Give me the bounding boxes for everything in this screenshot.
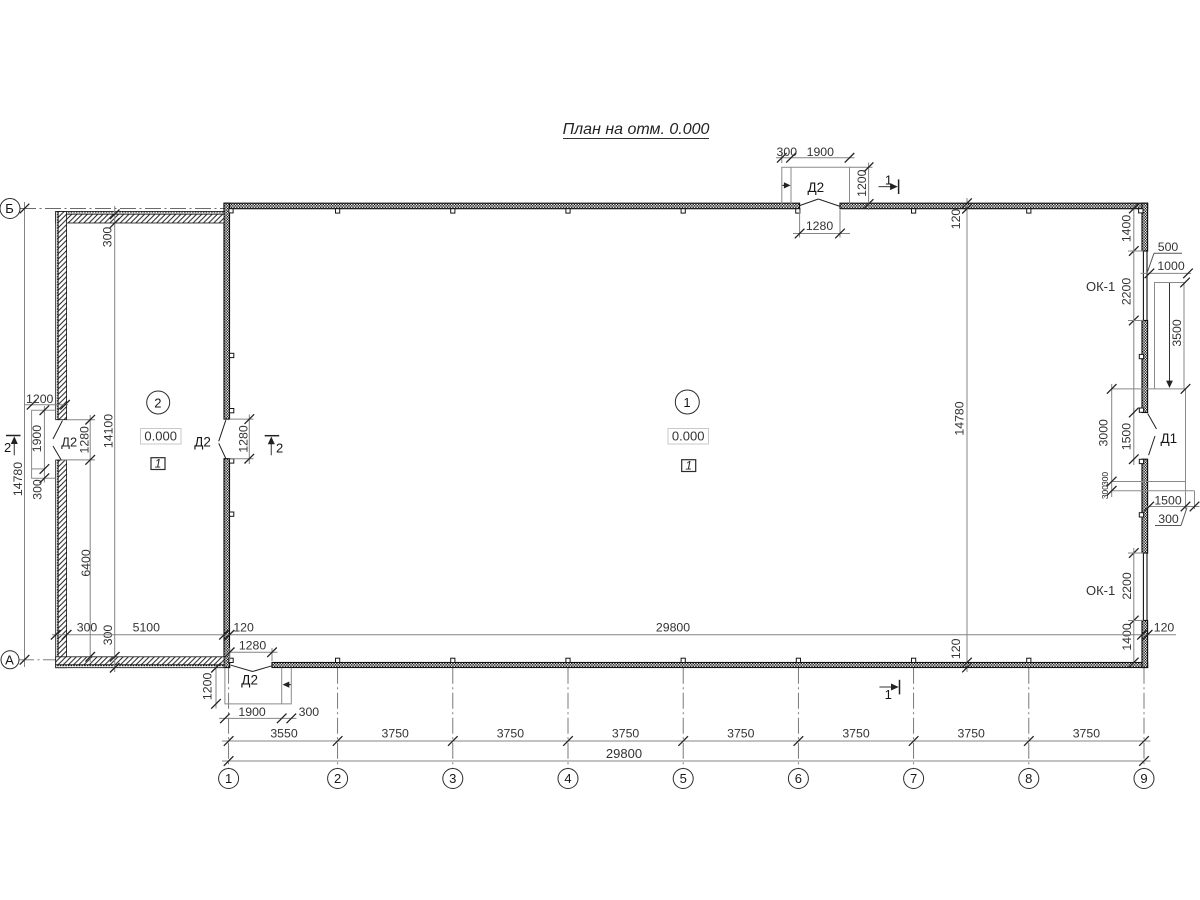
svg-text:2200: 2200 <box>1120 278 1134 306</box>
svg-text:1280: 1280 <box>78 426 92 454</box>
svg-text:1400: 1400 <box>1120 215 1134 243</box>
svg-text:1280: 1280 <box>806 219 834 233</box>
svg-text:300: 300 <box>30 479 44 500</box>
svg-text:9: 9 <box>1140 771 1147 786</box>
svg-text:120: 120 <box>1154 621 1175 635</box>
svg-text:Д2: Д2 <box>241 673 258 688</box>
svg-text:1280: 1280 <box>236 425 250 453</box>
svg-text:120: 120 <box>949 209 963 230</box>
svg-text:3750: 3750 <box>727 727 755 741</box>
svg-text:0.000: 0.000 <box>672 429 705 444</box>
svg-text:Д2: Д2 <box>808 180 825 195</box>
svg-text:3750: 3750 <box>842 727 870 741</box>
svg-text:29800: 29800 <box>656 621 690 635</box>
svg-text:2: 2 <box>276 441 283 456</box>
svg-text:0.000: 0.000 <box>144 429 177 444</box>
svg-text:1000: 1000 <box>1157 259 1185 273</box>
svg-text:1: 1 <box>885 173 892 188</box>
svg-text:6: 6 <box>795 771 802 786</box>
svg-text:2200: 2200 <box>1120 572 1134 600</box>
svg-text:1: 1 <box>685 459 692 473</box>
svg-text:2: 2 <box>334 771 341 786</box>
svg-text:Б: Б <box>5 201 14 216</box>
svg-text:5: 5 <box>680 771 687 786</box>
svg-text:ОК-1: ОК-1 <box>1086 583 1115 598</box>
svg-text:29800: 29800 <box>606 746 642 761</box>
svg-text:14780: 14780 <box>952 401 966 435</box>
svg-text:1: 1 <box>225 771 232 786</box>
svg-text:1280: 1280 <box>239 639 267 653</box>
svg-text:3750: 3750 <box>612 727 640 741</box>
svg-text:14780: 14780 <box>11 462 25 496</box>
svg-text:3500: 3500 <box>1170 319 1184 347</box>
svg-text:3550: 3550 <box>270 727 298 741</box>
svg-text:1200: 1200 <box>855 169 869 197</box>
svg-text:Д2: Д2 <box>61 434 77 449</box>
svg-text:300: 300 <box>1158 512 1179 526</box>
svg-text:1: 1 <box>155 457 162 471</box>
svg-text:300: 300 <box>100 227 114 248</box>
svg-text:300: 300 <box>1100 472 1110 486</box>
svg-text:1: 1 <box>885 687 892 702</box>
svg-text:6400: 6400 <box>79 549 93 577</box>
svg-text:1400: 1400 <box>1120 623 1134 651</box>
svg-text:500: 500 <box>1158 240 1179 254</box>
svg-text:120: 120 <box>949 638 963 659</box>
svg-text:1900: 1900 <box>807 145 835 159</box>
svg-text:3750: 3750 <box>497 727 525 741</box>
svg-text:1200: 1200 <box>200 673 214 701</box>
svg-text:4: 4 <box>564 771 571 786</box>
svg-text:120: 120 <box>233 621 254 635</box>
svg-text:1900: 1900 <box>238 705 266 719</box>
svg-text:8: 8 <box>1025 771 1032 786</box>
svg-text:3750: 3750 <box>958 727 986 741</box>
svg-text:ОК-1: ОК-1 <box>1086 279 1115 294</box>
svg-text:1900: 1900 <box>30 425 44 453</box>
svg-text:5100: 5100 <box>133 621 161 635</box>
svg-text:300: 300 <box>777 145 798 159</box>
svg-text:1500: 1500 <box>1154 493 1182 507</box>
svg-text:3750: 3750 <box>382 727 410 741</box>
svg-text:Д1: Д1 <box>1161 431 1178 446</box>
svg-text:Д2: Д2 <box>194 434 211 449</box>
svg-text:300: 300 <box>299 705 320 719</box>
svg-text:14100: 14100 <box>102 414 116 448</box>
svg-text:1500: 1500 <box>1120 423 1134 451</box>
svg-text:3750: 3750 <box>1073 727 1101 741</box>
svg-text:300: 300 <box>1100 485 1110 499</box>
svg-text:1: 1 <box>683 395 690 410</box>
svg-text:А: А <box>5 653 14 668</box>
svg-text:3: 3 <box>449 771 456 786</box>
svg-text:2: 2 <box>4 440 11 455</box>
svg-text:1200: 1200 <box>26 392 54 406</box>
svg-text:7: 7 <box>910 771 917 786</box>
svg-text:300: 300 <box>77 621 98 635</box>
svg-text:3000: 3000 <box>1097 419 1111 447</box>
svg-text:2: 2 <box>154 395 161 410</box>
svg-text:План на отм. 0.000: План на отм. 0.000 <box>563 121 710 138</box>
